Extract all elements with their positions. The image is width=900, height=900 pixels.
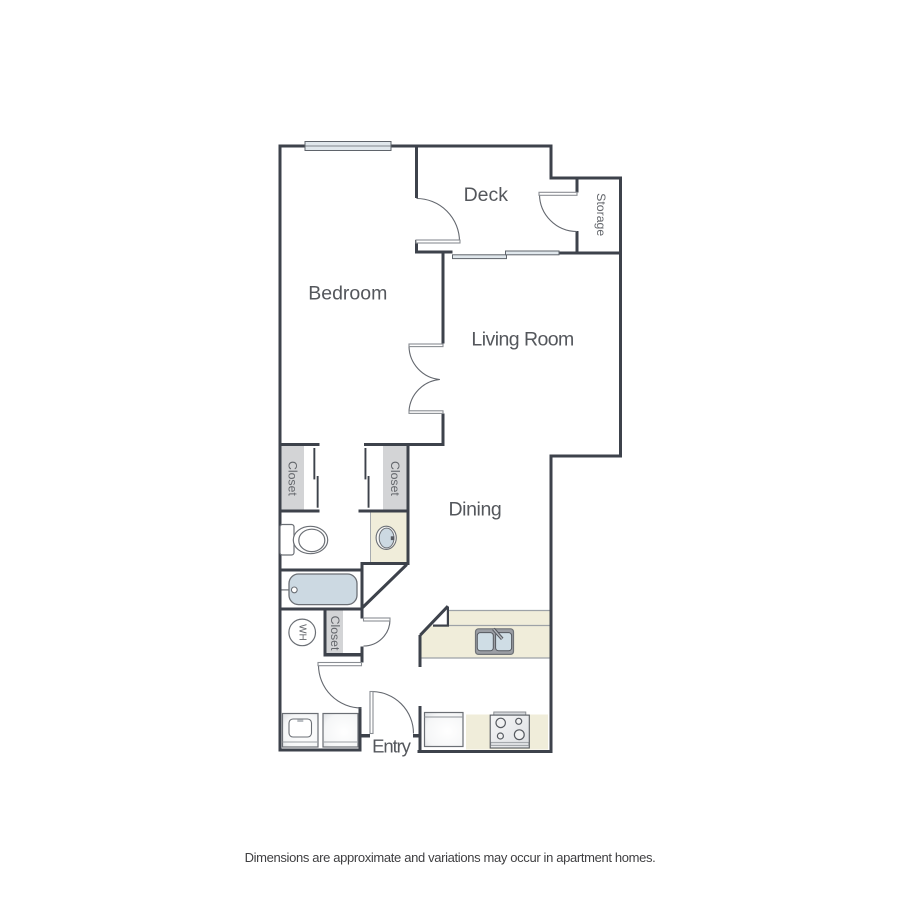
svg-text:Deck: Deck	[464, 184, 509, 206]
svg-text:Living Room: Living Room	[471, 329, 573, 351]
svg-text:WH: WH	[297, 624, 308, 641]
svg-text:Closet: Closet	[388, 461, 402, 496]
svg-text:Closet: Closet	[286, 461, 300, 496]
svg-text:Dimensions are approximate and: Dimensions are approximate and variation…	[245, 850, 656, 865]
svg-text:Storage: Storage	[594, 193, 608, 236]
svg-text:Dining: Dining	[448, 499, 501, 521]
svg-text:Closet: Closet	[328, 616, 342, 651]
svg-text:Bedroom: Bedroom	[308, 283, 387, 305]
svg-text:Entry: Entry	[372, 736, 412, 757]
